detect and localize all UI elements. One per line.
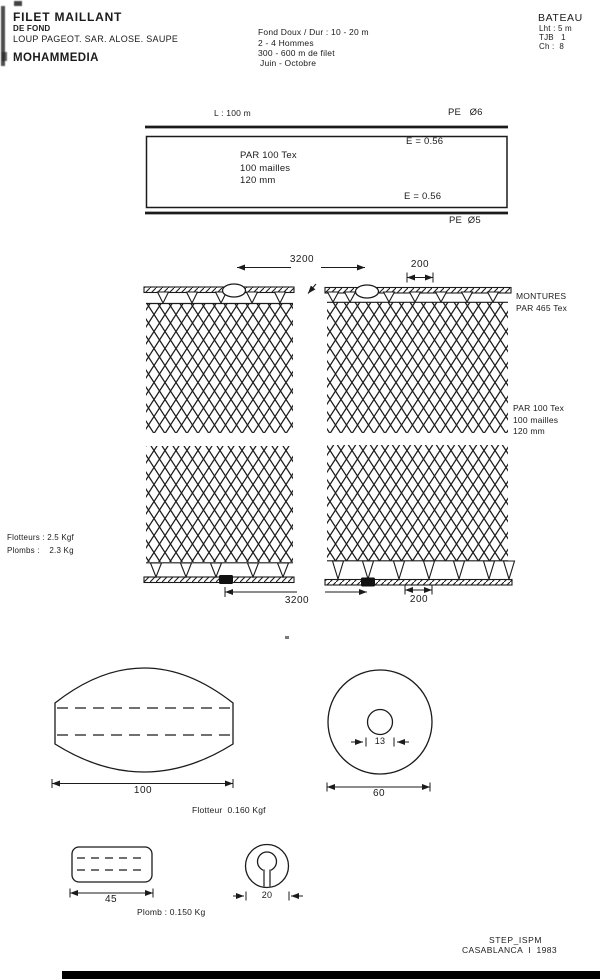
netting-mesh-size: 120 mm xyxy=(513,427,545,436)
sheet-subtitle: DE FOND xyxy=(13,25,50,33)
scan-speck-left xyxy=(2,52,7,61)
float-weight-label: Flotteur 0.160 Kgf xyxy=(192,806,266,815)
top-norsels xyxy=(158,292,499,303)
plan-length-label: L : 100 m xyxy=(214,109,251,118)
plan-netting-mesh-size: 120 mm xyxy=(240,176,276,186)
hanging-ratio-bottom: E = 0.56 xyxy=(404,192,441,202)
operation-crew: 2 - 4 Hommes xyxy=(258,39,314,48)
float-side-view xyxy=(52,668,233,788)
float-on-rope-left xyxy=(223,284,246,297)
lead-diameter-dim: 20 xyxy=(262,891,272,900)
plan-netting-twine: PAR 100 Tex xyxy=(240,151,297,161)
mounting-label-1: MONTURES xyxy=(516,292,566,301)
buoyancy-total: Flotteurs : 2.5 Kgf xyxy=(7,534,74,542)
float-end-view xyxy=(327,670,432,792)
headrope-spec: PE Ø6 xyxy=(448,108,483,118)
sheet-title: FILET MAILLANT xyxy=(13,11,122,24)
scan-speck-middle xyxy=(285,636,289,639)
float-on-rope-right xyxy=(356,285,379,298)
scanned-gillnet-technical-sheet: FILET MAILLANT DE FOND LOUP PAGEOT. SAR.… xyxy=(0,0,600,979)
scan-bottom-bar xyxy=(62,971,600,979)
footer-place-date: CASABLANCA I 1983 xyxy=(462,946,557,955)
operation-season: Juin - Octobre xyxy=(260,59,316,68)
scan-speck-top xyxy=(14,1,22,6)
bottom-dimensions xyxy=(225,586,432,598)
port-name: MOHAMMEDIA xyxy=(13,52,99,64)
operation-net-length: 300 - 600 m de filet xyxy=(258,49,335,58)
mesh-panels xyxy=(146,302,508,562)
mounting-label-2: PAR 465 Tex xyxy=(516,304,567,313)
lead-side-view xyxy=(70,847,153,898)
footer-institution: STEP_ISPM xyxy=(489,936,542,945)
lead-length-dim: 45 xyxy=(105,895,117,906)
float-length-dim: 100 xyxy=(134,786,152,797)
lead-weight-label: Plomb : 0.150 Kg xyxy=(137,908,205,917)
leadline-left xyxy=(144,575,294,584)
hanging-ratio-top: E = 0.56 xyxy=(406,137,443,147)
netting-twine: PAR 100 Tex xyxy=(513,404,564,413)
boat-title: BATEAU xyxy=(538,13,583,24)
leadline-right xyxy=(325,578,512,587)
plan-view-drawing xyxy=(145,127,508,213)
plan-netting-meshes: 100 mailles xyxy=(240,164,290,174)
footrope-spec: PE Ø5 xyxy=(449,216,481,226)
diagram-artwork xyxy=(0,0,600,979)
float-diameter-dim: 60 xyxy=(373,789,385,800)
operation-depth: Fond Doux / Dur : 10 - 20 m xyxy=(258,28,369,37)
lead-spacing-dim: 3200 xyxy=(285,596,309,607)
float-hole-dim: 13 xyxy=(375,737,385,746)
bottom-norsels xyxy=(151,561,515,579)
species-list: LOUP PAGEOT. SAR. ALOSE. SAUPE xyxy=(13,35,178,44)
boat-power: Ch : 8 xyxy=(539,43,564,51)
norsel-spacing-top-dim: 200 xyxy=(411,260,429,271)
ballast-total: Plombs : 2.3 Kg xyxy=(7,547,74,555)
norsel-spacing-bottom-dim: 200 xyxy=(410,595,428,606)
float-spacing-dim: 3200 xyxy=(290,255,314,266)
netting-meshes: 100 mailles xyxy=(513,416,558,425)
